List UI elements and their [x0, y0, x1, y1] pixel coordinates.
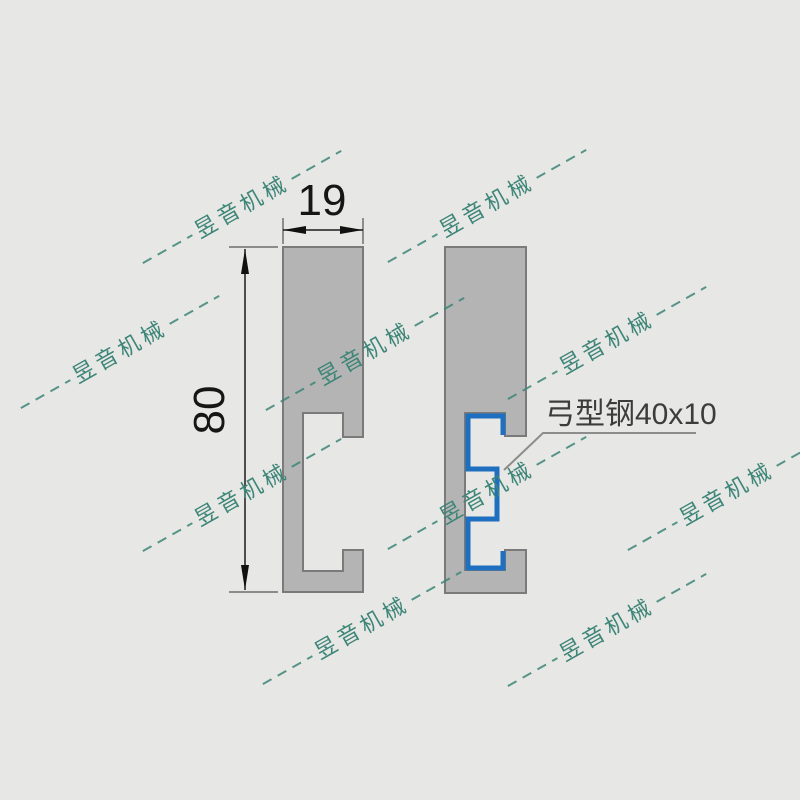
width-arrow-left-icon [283, 226, 306, 234]
dimension-width: 19 [283, 176, 363, 244]
width-arrow-right-icon [340, 226, 363, 234]
right-profile-cross-section [445, 247, 526, 593]
height-arrow-down-icon [241, 565, 249, 590]
dimension-height: 80 [185, 247, 278, 592]
dim-width-value: 19 [298, 176, 347, 225]
drawing-page: { "drawing": { "width_dim": "19", "heigh… [0, 0, 800, 800]
engineering-drawing-canvas: 19 80 弓型钢40x10 [0, 0, 800, 800]
callout-leader-line [504, 433, 696, 470]
dim-height-value: 80 [185, 386, 234, 435]
bow-steel-strip [468, 416, 503, 568]
callout-label: 弓型钢40x10 [545, 398, 717, 431]
height-arrow-up-icon [241, 249, 249, 274]
left-profile-cross-section [283, 247, 363, 592]
callout: 弓型钢40x10 [504, 398, 717, 470]
